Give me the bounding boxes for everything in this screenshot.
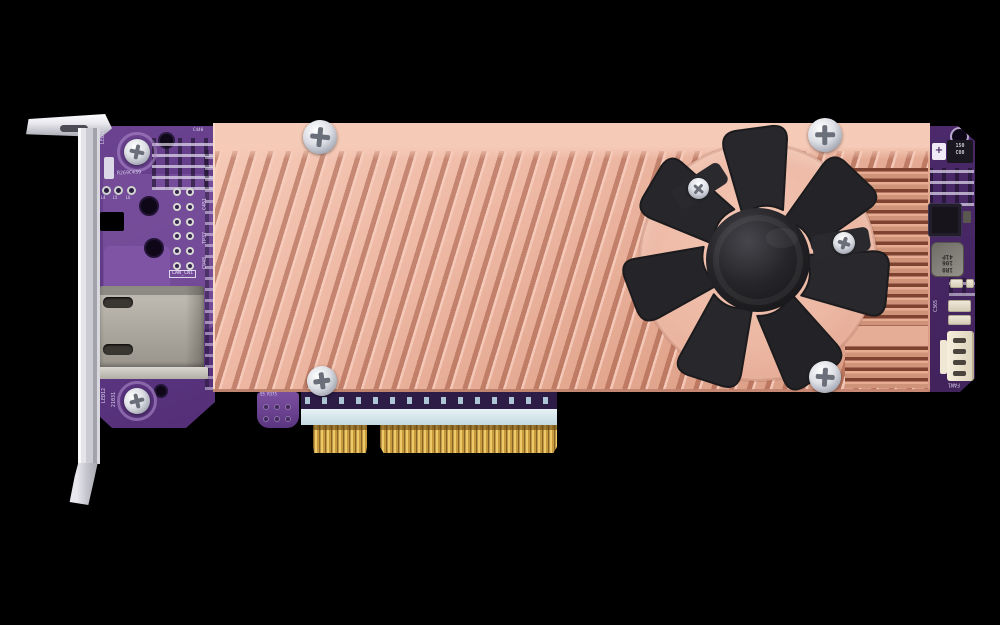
- pad-dot: [263, 404, 269, 410]
- pad-ring: [173, 218, 181, 226]
- pcie-gold-fingers-short: [313, 425, 367, 453]
- pad-ring: [186, 188, 194, 196]
- pad-ring: [186, 218, 194, 226]
- pad-ring-l5: [114, 186, 123, 195]
- pcie-mask-strip: [301, 409, 557, 425]
- pad-ring: [173, 203, 181, 211]
- capacitor-150: 150 C08: [947, 140, 973, 163]
- pcie-component-strip: [301, 392, 557, 409]
- pad-dot: [274, 416, 280, 422]
- ethernet-port-flange: [97, 367, 208, 379]
- mounting-hole: [144, 238, 164, 258]
- smd-component: [963, 211, 971, 223]
- fan-hub: [706, 208, 810, 312]
- fan-blades: [621, 126, 897, 396]
- port-led-slot: [103, 344, 133, 355]
- pad-dot: [285, 404, 291, 410]
- port-led-slot: [103, 297, 133, 308]
- silkscreen-c451: C451: [203, 198, 209, 210]
- pad-dot: [285, 416, 291, 422]
- mounting-hole: [139, 196, 159, 216]
- pad-dot: [263, 416, 269, 422]
- fan-connector-pin: [953, 371, 966, 376]
- pad-ring-l4: [102, 186, 111, 195]
- tab-label: SS R375: [260, 393, 277, 397]
- pad-ring: [186, 262, 194, 270]
- power-inductor: 1R0 106 41P: [931, 242, 964, 277]
- silkscreen-led11: LED11: [101, 129, 107, 144]
- silkscreen-r269: R269C439: [117, 171, 141, 177]
- smd-cluster: [929, 168, 974, 206]
- pad-ring: [186, 203, 194, 211]
- polarity-mark: +: [932, 143, 946, 160]
- silkscreen-l4: L4: [101, 197, 106, 201]
- qfn-chip: [928, 203, 962, 237]
- pad-ring: [173, 232, 181, 240]
- silkscreen-led12: LED12: [102, 388, 108, 403]
- cap-code: C08: [947, 150, 973, 157]
- smd-capacitor: [966, 279, 974, 288]
- silkscreen-l6: L6: [126, 197, 131, 201]
- smd-row: [305, 397, 553, 404]
- silkscreen-lan-cn1: LAN_CN1: [169, 270, 196, 278]
- bracket-tail: [66, 463, 102, 505]
- pad-ring-l6: [127, 186, 136, 195]
- silkscreen-fan1: FAN1: [948, 381, 960, 387]
- screw: [808, 118, 842, 152]
- fan-connector-pin: [953, 349, 966, 354]
- pad-ring: [186, 232, 194, 240]
- pad-ring: [173, 262, 181, 270]
- pad-ring: [173, 247, 181, 255]
- inductor-line: 1R0: [932, 265, 963, 272]
- bracket-bar: [78, 128, 100, 464]
- pcie-gold-fingers-long: [380, 425, 557, 453]
- silkscreen-l5: L5: [113, 197, 118, 201]
- pad-ring: [173, 188, 181, 196]
- through-hole-pad-grid: [170, 188, 196, 270]
- product-photo-stage: SS R375: [0, 0, 1000, 625]
- smd-column: [205, 150, 213, 390]
- silkscreen-c365: C365: [934, 300, 940, 312]
- pcb-tab: SS R375: [257, 392, 299, 428]
- silkscreen-serial: 21031: [112, 392, 118, 407]
- pad-ring: [186, 247, 194, 255]
- smd-fuse: [948, 300, 971, 312]
- silkscreen-c440: C440: [193, 128, 203, 133]
- smd-component: [948, 315, 971, 325]
- pcb-cutout: [100, 212, 124, 231]
- cooling-fan: [600, 95, 920, 425]
- fan-connector-latch: [940, 340, 947, 374]
- heatsink-edge-highlight: [213, 123, 215, 392]
- fan-connector-pin: [953, 360, 966, 365]
- silkscreen-c948: C948: [203, 257, 209, 269]
- fan-connector: [947, 331, 974, 381]
- fan-connector-pin: [953, 338, 966, 343]
- smd-component: [104, 157, 114, 179]
- inductor-line: 41P: [932, 252, 963, 259]
- ethernet-port: [100, 286, 204, 368]
- pad-dot: [274, 404, 280, 410]
- smd-capacitor: [950, 279, 963, 288]
- silkscreen-tp37: TP37: [203, 232, 209, 244]
